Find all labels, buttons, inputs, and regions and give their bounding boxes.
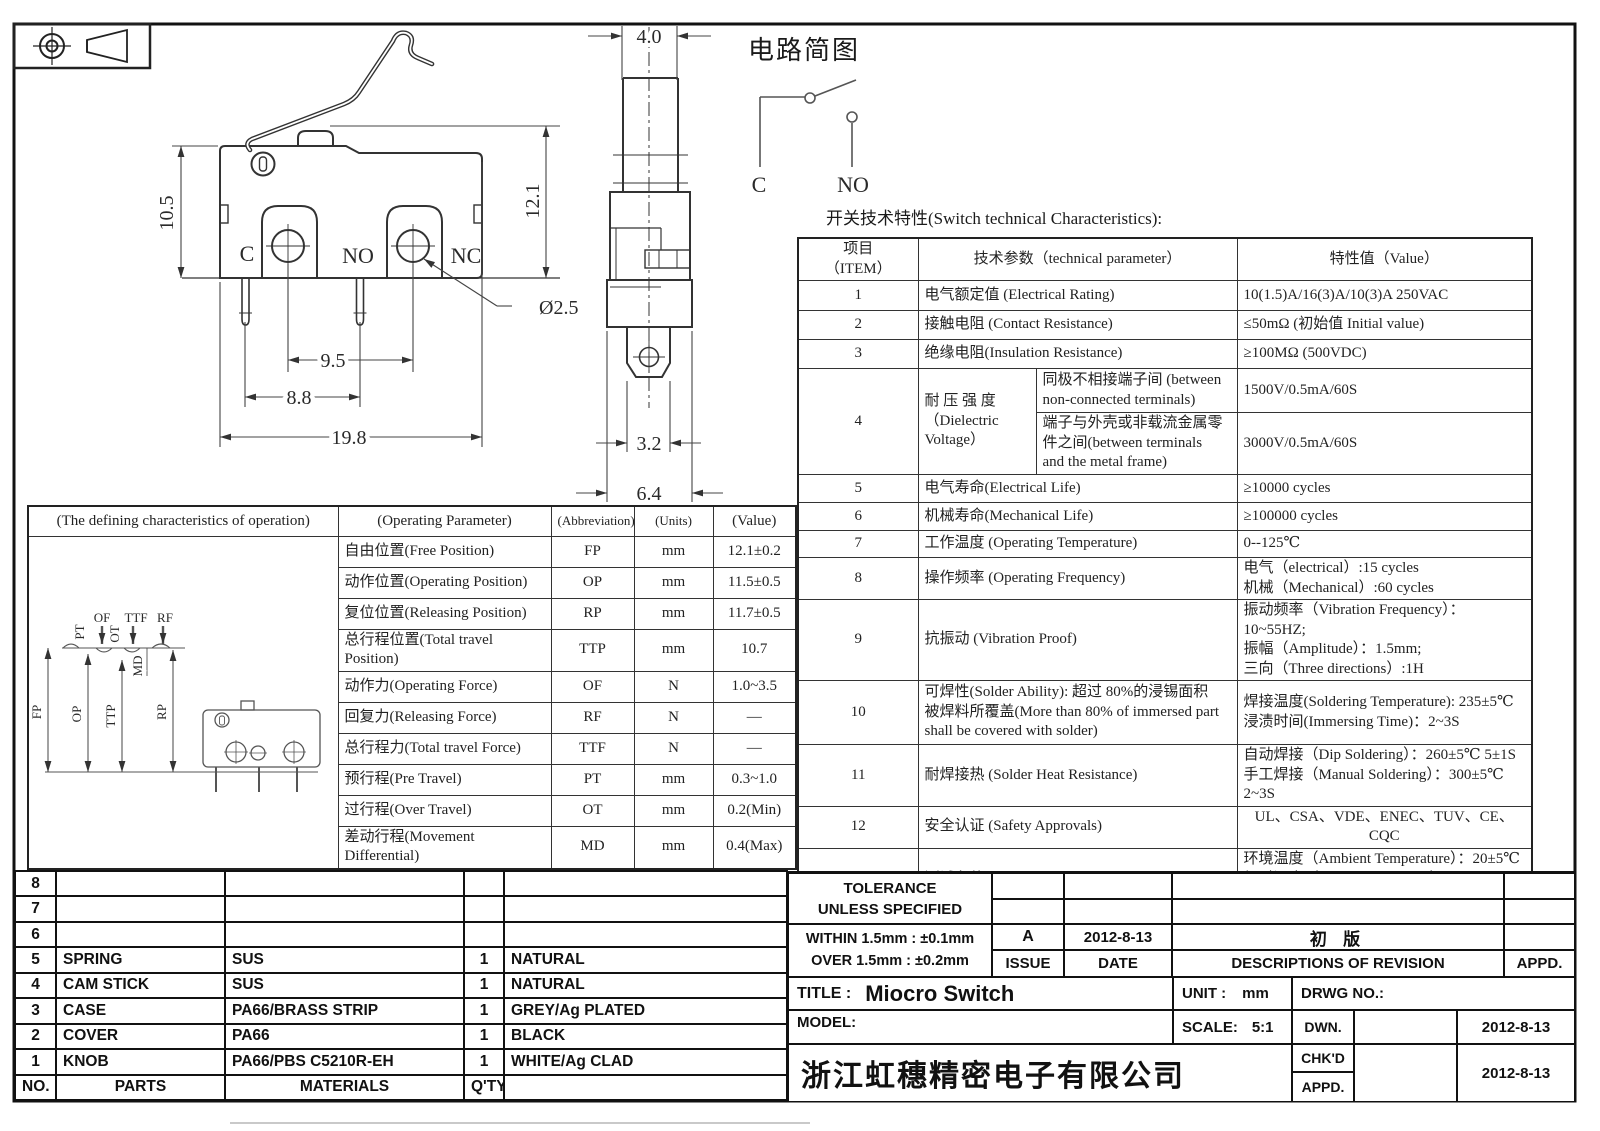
part-material: PA66/BRASS STRIP bbox=[225, 998, 464, 1023]
rev-description-value: 初 版 bbox=[1173, 925, 1503, 949]
front-view bbox=[182, 33, 560, 325]
dim-8-8: 8.8 bbox=[287, 387, 312, 409]
part-name: KNOB bbox=[56, 1049, 225, 1074]
chk-signature bbox=[1355, 1045, 1456, 1101]
part-qty bbox=[464, 896, 504, 921]
row-param: 电气寿命(Electrical Life) bbox=[918, 475, 1237, 503]
part-material bbox=[225, 922, 464, 947]
part-qty: 1 bbox=[464, 947, 504, 972]
rev-cell-empty bbox=[1173, 900, 1503, 923]
model-cell: MODEL: bbox=[789, 1011, 1172, 1043]
circuit-diagram bbox=[760, 80, 857, 167]
common-contact bbox=[805, 93, 815, 103]
row-param: 绝缘电阻(Insulation Resistance) bbox=[918, 340, 1237, 369]
row-param: 安全认证 (Safety Approvals) bbox=[918, 806, 1237, 848]
row-value: 振动频率（Vibration Frequency）：10~55HZ; 振幅（Am… bbox=[1237, 600, 1532, 681]
rev-cell-empty bbox=[993, 900, 1063, 923]
scale-value: 5:1 bbox=[1252, 1019, 1274, 1036]
unit-label: UNIT : bbox=[1182, 985, 1226, 1002]
part-no: 4 bbox=[15, 973, 56, 998]
parts-footer-qty: Q'TY bbox=[464, 1075, 504, 1101]
part-name: SPRING bbox=[56, 947, 225, 972]
row-value: 10(1.5)A/16(3)A/10(3)A 250VAC bbox=[1237, 281, 1532, 311]
dim-3-2: 3.2 bbox=[637, 433, 662, 455]
lever-spring bbox=[247, 33, 432, 150]
rev-cell-empty bbox=[993, 874, 1063, 898]
rev-cell-empty bbox=[1505, 900, 1574, 923]
op-value: 12.1±0.2 bbox=[713, 536, 796, 567]
tolerance-header: TOLERANCE UNLESS SPECIFIED bbox=[789, 874, 991, 923]
op-header-parameter: (Operating Parameter) bbox=[338, 506, 551, 536]
dim-12-1: 12.1 bbox=[522, 184, 544, 219]
part-qty: 1 bbox=[464, 1024, 504, 1049]
row-value: 焊接温度(Soldering Temperature): 235±5℃ 浸渍时间… bbox=[1237, 681, 1532, 745]
op-units: N bbox=[634, 733, 713, 764]
op-units: mm bbox=[634, 629, 713, 671]
op-value: 1.0~3.5 bbox=[713, 671, 796, 702]
parts-footer-color bbox=[504, 1075, 787, 1101]
row-no: 9 bbox=[798, 600, 918, 681]
parts-footer-parts: PARTS bbox=[56, 1075, 225, 1101]
row-value: 电气（electrical）:15 cycles 机械（Mechanical）:… bbox=[1237, 558, 1532, 600]
row-no: 2 bbox=[798, 311, 918, 340]
part-qty: 1 bbox=[464, 998, 504, 1023]
tolerance-line1: TOLERANCE bbox=[843, 878, 936, 899]
tolerance-over: OVER 1.5mm : ±0.2mm bbox=[811, 951, 969, 973]
projection-symbol-icon bbox=[14, 24, 150, 68]
part-name: CAM STICK bbox=[56, 973, 225, 998]
scan-artifact-line bbox=[230, 1122, 810, 1124]
row-value: 自动焊接（Dip Soldering）：260±5℃ 5±1S 手工焊接（Man… bbox=[1237, 745, 1532, 807]
dwn-signature bbox=[1355, 1011, 1456, 1043]
circuit-label-c: C bbox=[752, 172, 767, 197]
op-abbr: PT bbox=[551, 764, 634, 795]
op-abbr: MD bbox=[551, 826, 634, 869]
op-param: 总行程力(Total travel Force) bbox=[338, 733, 551, 764]
op-units: mm bbox=[634, 826, 713, 869]
op-value: 0.4(Max) bbox=[713, 826, 796, 869]
row-no: 3 bbox=[798, 340, 918, 369]
circuit-label-no: NO bbox=[837, 172, 869, 197]
dim-4-0: 4.0 bbox=[637, 26, 662, 48]
op-value: 11.7±0.5 bbox=[713, 598, 796, 629]
rev-date-value: 2012-8-13 bbox=[1065, 925, 1171, 949]
row-value: 1500V/0.5mA/60S bbox=[1237, 369, 1532, 413]
row-no: 7 bbox=[798, 531, 918, 558]
op-header-characteristics: (The defining characteristics of operati… bbox=[28, 506, 338, 536]
tolerance-values: WITHIN 1.5mm : ±0.1mm OVER 1.5mm : ±0.2m… bbox=[789, 925, 991, 976]
row-param: 抗振动 (Vibration Proof) bbox=[918, 600, 1237, 681]
side-view bbox=[607, 27, 692, 408]
row-value: 0--125℃ bbox=[1237, 531, 1532, 558]
rev-cell-empty bbox=[1173, 874, 1503, 898]
row-no: 4 bbox=[798, 369, 918, 475]
part-material bbox=[225, 896, 464, 921]
row-param: 可焊性(Solder Ability): 超过 80%的浸锡面积 被焊料所覆盖(… bbox=[918, 681, 1237, 745]
part-color: BLACK bbox=[504, 1024, 787, 1049]
rev-appd-value bbox=[1505, 925, 1574, 949]
drwg-no-cell: DRWG NO.: bbox=[1293, 978, 1574, 1009]
op-value: — bbox=[713, 733, 796, 764]
part-color: GREY/Ag PLATED bbox=[504, 998, 787, 1023]
op-header-value: (Value) bbox=[713, 506, 796, 536]
row-param: 操作频率 (Operating Frequency) bbox=[918, 558, 1237, 600]
part-no: 5 bbox=[15, 947, 56, 972]
part-qty bbox=[464, 871, 504, 896]
op-diagram-cell bbox=[28, 536, 338, 869]
row-param: 接触电阻 (Contact Resistance) bbox=[918, 311, 1237, 340]
col-header-param: 技术参数（technical parameter） bbox=[918, 238, 1237, 281]
op-units: mm bbox=[634, 795, 713, 826]
unit-cell: UNIT : mm bbox=[1174, 978, 1291, 1009]
part-qty: 1 bbox=[464, 973, 504, 998]
col-header-item: 项目 （ITEM） bbox=[798, 238, 918, 281]
op-value: 10.7 bbox=[713, 629, 796, 671]
op-param: 动作力(Operating Force) bbox=[338, 671, 551, 702]
no-contact bbox=[847, 112, 857, 122]
dwn-date: 2012-8-13 bbox=[1458, 1011, 1574, 1043]
row-param: 耐焊接热 (Solder Heat Resistance) bbox=[918, 745, 1237, 807]
op-value: 0.2(Min) bbox=[713, 795, 796, 826]
part-color: NATURAL bbox=[504, 947, 787, 972]
dim-9-5: 9.5 bbox=[321, 350, 346, 372]
part-name bbox=[56, 871, 225, 896]
op-units: N bbox=[634, 671, 713, 702]
op-param: 回复力(Releasing Force) bbox=[338, 702, 551, 733]
row-value: ≥100MΩ (500VDC) bbox=[1237, 340, 1532, 369]
col-header-value: 特性值（Value） bbox=[1237, 238, 1532, 281]
part-name bbox=[56, 922, 225, 947]
op-abbr: OT bbox=[551, 795, 634, 826]
operating-parameter-table: (The defining characteristics of operati… bbox=[27, 505, 797, 870]
row-subparam: 端子与外壳或非载流金属零 件之间(between terminals and t… bbox=[1036, 413, 1237, 475]
drawing-title: Miocro Switch bbox=[865, 981, 1014, 1007]
rev-cell-empty bbox=[1065, 874, 1171, 898]
row-param: 电气额定值 (Electrical Rating) bbox=[918, 281, 1237, 311]
row-no: 5 bbox=[798, 475, 918, 503]
part-color: NATURAL bbox=[504, 973, 787, 998]
op-header-abbreviation: (Abbreviation) bbox=[551, 506, 634, 536]
dim-hole: Ø2.5 bbox=[539, 297, 578, 319]
op-value: — bbox=[713, 702, 796, 733]
dwn-label: DWN. bbox=[1293, 1011, 1353, 1043]
appd-label: APPD. bbox=[1293, 1073, 1353, 1101]
row-value: ≤50mΩ (初始值 Initial value) bbox=[1237, 311, 1532, 340]
terminal-label-c: C bbox=[240, 241, 255, 266]
row-value: ≥100000 cycles bbox=[1237, 503, 1532, 531]
title-row: TITLE : Miocro Switch bbox=[789, 978, 1172, 1009]
part-name: COVER bbox=[56, 1024, 225, 1049]
tolerance-line2: UNLESS SPECIFIED bbox=[818, 899, 962, 920]
part-material: PA66/PBS C5210R-EH bbox=[225, 1049, 464, 1074]
part-material: PA66 bbox=[225, 1024, 464, 1049]
row-no: 12 bbox=[798, 806, 918, 848]
drawing-sheet: 10.5 12.1 Ø2.5 9.5 8.8 19.8 C NO NC bbox=[0, 0, 1600, 1131]
title-block: TOLERANCE UNLESS SPECIFIED WITHIN 1.5mm … bbox=[786, 871, 1575, 1101]
row-no: 1 bbox=[798, 281, 918, 311]
op-value: 11.5±0.5 bbox=[713, 567, 796, 598]
op-value: 0.3~1.0 bbox=[713, 764, 796, 795]
row-no: 6 bbox=[798, 503, 918, 531]
op-abbr: TTF bbox=[551, 733, 634, 764]
op-units: mm bbox=[634, 567, 713, 598]
part-color bbox=[504, 896, 787, 921]
rev-issue-value: A bbox=[993, 925, 1063, 949]
scale-cell: SCALE: 5:1 bbox=[1174, 1011, 1291, 1043]
op-param: 过行程(Over Travel) bbox=[338, 795, 551, 826]
rev-header-descriptions: DESCRIPTIONS OF REVISION bbox=[1173, 951, 1503, 976]
part-color bbox=[504, 871, 787, 896]
characteristics-heading: 开关技术特性(Switch technical Characteristics)… bbox=[826, 204, 1162, 229]
op-units: N bbox=[634, 702, 713, 733]
op-units: mm bbox=[634, 536, 713, 567]
row-no: 11 bbox=[798, 745, 918, 807]
characteristics-table: 项目 （ITEM） 技术参数（technical parameter） 特性值（… bbox=[797, 237, 1533, 912]
title-label: TITLE : bbox=[797, 985, 851, 1003]
part-material bbox=[225, 871, 464, 896]
company-name: 浙江虹穗精密电子有限公司 bbox=[789, 1045, 1291, 1101]
rev-cell-empty bbox=[1065, 900, 1171, 923]
dim-19-8: 19.8 bbox=[332, 427, 367, 449]
op-param: 动作位置(Operating Position) bbox=[338, 567, 551, 598]
chk-date: 2012-8-13 bbox=[1458, 1045, 1574, 1101]
switch-lever bbox=[815, 80, 856, 96]
op-param: 总行程位置(Total travel Position) bbox=[338, 629, 551, 671]
part-no: 3 bbox=[15, 998, 56, 1023]
part-no: 2 bbox=[15, 1024, 56, 1049]
row-no: 8 bbox=[798, 558, 918, 600]
part-name: CASE bbox=[56, 998, 225, 1023]
op-param: 预行程(Pre Travel) bbox=[338, 764, 551, 795]
rev-header-date: DATE bbox=[1065, 951, 1171, 976]
row-value: UL、CSA、VDE、ENEC、TUV、CE、CQC bbox=[1237, 806, 1532, 848]
op-abbr: OF bbox=[551, 671, 634, 702]
row-no: 10 bbox=[798, 681, 918, 745]
op-abbr: TTP bbox=[551, 629, 634, 671]
row-value: 3000V/0.5mA/60S bbox=[1237, 413, 1532, 475]
dim-6-4: 6.4 bbox=[637, 483, 662, 505]
parts-list-table: 8 7 6 5SPRINGSUS1NATURAL 4CAM STICKSUS1N… bbox=[14, 870, 788, 1101]
row-param-main: 耐 压 强 度 （Dielectric Voltage） bbox=[918, 369, 1036, 475]
terminal-label-nc: NC bbox=[451, 243, 482, 268]
dim-10-5: 10.5 bbox=[156, 196, 178, 231]
scale-label: SCALE: bbox=[1182, 1019, 1238, 1036]
tolerance-within: WITHIN 1.5mm : ±0.1mm bbox=[806, 929, 974, 951]
op-param: 自由位置(Free Position) bbox=[338, 536, 551, 567]
terminal-label-no: NO bbox=[342, 243, 374, 268]
part-name bbox=[56, 896, 225, 921]
rev-header-issue: ISSUE bbox=[993, 951, 1063, 976]
side-view-dimensions bbox=[576, 26, 723, 502]
part-no: 1 bbox=[15, 1049, 56, 1074]
part-no: 6 bbox=[15, 922, 56, 947]
terminal-pins bbox=[239, 278, 367, 325]
circuit-diagram-title: 电路简图 bbox=[748, 30, 860, 67]
op-abbr: OP bbox=[551, 567, 634, 598]
part-no: 7 bbox=[15, 896, 56, 921]
part-material: SUS bbox=[225, 947, 464, 972]
op-units: mm bbox=[634, 598, 713, 629]
row-param: 机械寿命(Mechanical Life) bbox=[918, 503, 1237, 531]
rev-cell-empty bbox=[1505, 874, 1574, 898]
op-param: 复位位置(Releasing Position) bbox=[338, 598, 551, 629]
op-abbr: RF bbox=[551, 702, 634, 733]
row-subparam: 同极不相接端子间 (between non-connected terminal… bbox=[1036, 369, 1237, 413]
chkd-label: CHK'D bbox=[1293, 1045, 1353, 1071]
row-value: ≥10000 cycles bbox=[1237, 475, 1532, 503]
parts-footer-materials: MATERIALS bbox=[225, 1075, 464, 1101]
row-param: 工作温度 (Operating Temperature) bbox=[918, 531, 1237, 558]
op-abbr: RP bbox=[551, 598, 634, 629]
part-qty bbox=[464, 922, 504, 947]
rev-header-appd: APPD. bbox=[1505, 951, 1574, 976]
part-color bbox=[504, 922, 787, 947]
part-color: WHITE/Ag CLAD bbox=[504, 1049, 787, 1074]
front-view-dimensions bbox=[172, 126, 560, 447]
op-param: 差动行程(Movement Differential) bbox=[338, 826, 551, 869]
part-qty: 1 bbox=[464, 1049, 504, 1074]
unit-value: mm bbox=[1242, 985, 1269, 1002]
part-material: SUS bbox=[225, 973, 464, 998]
op-units: mm bbox=[634, 764, 713, 795]
parts-footer-no: NO. bbox=[15, 1075, 56, 1101]
op-header-units: (Units) bbox=[634, 506, 713, 536]
part-no: 8 bbox=[15, 871, 56, 896]
op-abbr: FP bbox=[551, 536, 634, 567]
